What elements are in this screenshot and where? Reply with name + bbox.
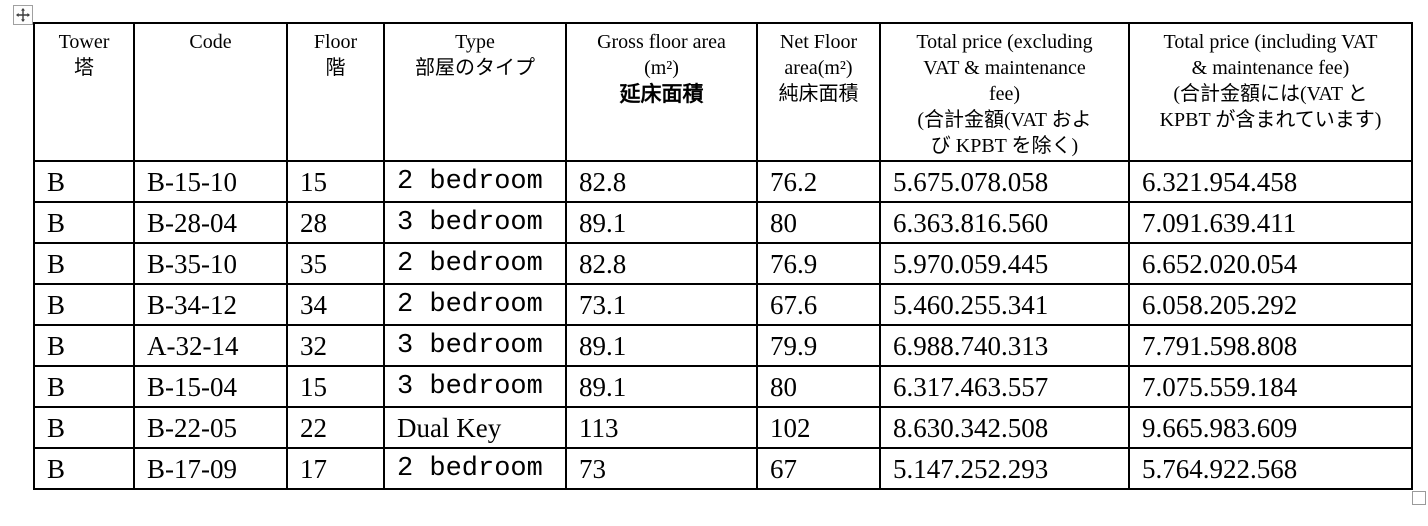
cell-gross: 82.8 [566, 243, 757, 284]
header-line: Floor [288, 29, 383, 55]
header-line: Gross floor area [567, 29, 756, 55]
cell-price-excl: 6.363.816.560 [880, 202, 1129, 243]
cell-price-excl: 5.675.078.058 [880, 161, 1129, 202]
table-row: BA-32-14323 bedroom89.179.96.988.740.313… [34, 325, 1412, 366]
cell-tower: B [34, 202, 134, 243]
cell-code: B-17-09 [134, 448, 287, 489]
cell-gross: 73.1 [566, 284, 757, 325]
cell-price-incl: 7.791.598.808 [1129, 325, 1412, 366]
cell-gross: 89.1 [566, 366, 757, 407]
column-header-price-incl: Total price (including VAT& maintenance … [1129, 23, 1412, 161]
header-row: Tower塔CodeFloor階Type部屋のタイプGross floor ar… [34, 23, 1412, 161]
column-header-net-area: Net Floorarea(m²)純床面積 [757, 23, 880, 161]
header-line: (合計金額(VAT およ [881, 107, 1128, 133]
cell-price-excl: 8.630.342.508 [880, 407, 1129, 448]
cell-type: 3 bedroom [384, 202, 566, 243]
cell-price-incl: 6.058.205.292 [1129, 284, 1412, 325]
cell-tower: B [34, 243, 134, 284]
cell-gross: 82.8 [566, 161, 757, 202]
cell-price-excl: 5.970.059.445 [880, 243, 1129, 284]
cell-type: 3 bedroom [384, 325, 566, 366]
table-row: BB-15-10152 bedroom82.876.25.675.078.058… [34, 161, 1412, 202]
cell-code: A-32-14 [134, 325, 287, 366]
cell-net: 102 [757, 407, 880, 448]
cell-price-incl: 5.764.922.568 [1129, 448, 1412, 489]
cell-floor: 15 [287, 366, 384, 407]
header-line: 階 [288, 55, 383, 81]
cell-floor: 17 [287, 448, 384, 489]
header-line: 塔 [35, 55, 133, 81]
cell-type: 2 bedroom [384, 161, 566, 202]
cell-tower: B [34, 366, 134, 407]
move-cross-icon [16, 8, 30, 22]
header-line: Tower [35, 29, 133, 55]
cell-gross: 73 [566, 448, 757, 489]
cell-tower: B [34, 325, 134, 366]
header-line: VAT & maintenance [881, 55, 1128, 81]
cell-gross: 89.1 [566, 325, 757, 366]
header-line: Code [135, 29, 286, 55]
cell-code: B-22-05 [134, 407, 287, 448]
cell-type: 2 bedroom [384, 448, 566, 489]
cell-floor: 22 [287, 407, 384, 448]
cell-code: B-28-04 [134, 202, 287, 243]
column-header-price-excl: Total price (excludingVAT & maintenancef… [880, 23, 1129, 161]
table-row: BB-17-09172 bedroom73675.147.252.2935.76… [34, 448, 1412, 489]
header-line: 延床面積 [567, 81, 756, 109]
cell-tower: B [34, 448, 134, 489]
table-row: BB-35-10352 bedroom82.876.95.970.059.445… [34, 243, 1412, 284]
column-header-floor: Floor階 [287, 23, 384, 161]
cell-price-incl: 7.075.559.184 [1129, 366, 1412, 407]
table-row: BB-22-0522Dual Key1131028.630.342.5089.6… [34, 407, 1412, 448]
cell-type: Dual Key [384, 407, 566, 448]
header-line: 部屋のタイプ [385, 55, 565, 81]
cell-net: 67 [757, 448, 880, 489]
cell-net: 76.9 [757, 243, 880, 284]
cell-type: 2 bedroom [384, 284, 566, 325]
table-move-handle[interactable] [13, 5, 33, 25]
header-line: KPBT が含まれています) [1130, 107, 1411, 133]
table-row: BB-34-12342 bedroom73.167.65.460.255.341… [34, 284, 1412, 325]
header-line: (合計金額には(VAT と [1130, 81, 1411, 107]
header-line: び KPBT を除く) [881, 133, 1128, 159]
cell-price-incl: 9.665.983.609 [1129, 407, 1412, 448]
cell-tower: B [34, 407, 134, 448]
cell-floor: 32 [287, 325, 384, 366]
cell-net: 67.6 [757, 284, 880, 325]
header-line: 純床面積 [758, 81, 879, 107]
cell-code: B-15-10 [134, 161, 287, 202]
cell-floor: 34 [287, 284, 384, 325]
table-row: BB-28-04283 bedroom89.1806.363.816.5607.… [34, 202, 1412, 243]
header-line: (m²) [567, 55, 756, 81]
cell-net: 80 [757, 366, 880, 407]
cell-tower: B [34, 284, 134, 325]
header-line: fee) [881, 81, 1128, 107]
cell-price-excl: 5.460.255.341 [880, 284, 1129, 325]
cell-net: 80 [757, 202, 880, 243]
cell-floor: 35 [287, 243, 384, 284]
cell-code: B-34-12 [134, 284, 287, 325]
cell-net: 76.2 [757, 161, 880, 202]
header-line: area(m²) [758, 55, 879, 81]
cell-price-excl: 5.147.252.293 [880, 448, 1129, 489]
table-body: BB-15-10152 bedroom82.876.25.675.078.058… [34, 161, 1412, 489]
cell-type: 3 bedroom [384, 366, 566, 407]
cell-price-incl: 6.652.020.054 [1129, 243, 1412, 284]
cell-price-incl: 7.091.639.411 [1129, 202, 1412, 243]
units-price-table: Tower塔CodeFloor階Type部屋のタイプGross floor ar… [33, 22, 1413, 490]
cell-net: 79.9 [757, 325, 880, 366]
header-line: Total price (including VAT [1130, 29, 1411, 55]
cell-floor: 15 [287, 161, 384, 202]
cell-gross: 89.1 [566, 202, 757, 243]
cell-code: B-35-10 [134, 243, 287, 284]
header-line: & maintenance fee) [1130, 55, 1411, 81]
header-line: Type [385, 29, 565, 55]
table-resize-handle[interactable] [1412, 491, 1426, 505]
cell-price-excl: 6.317.463.557 [880, 366, 1129, 407]
cell-floor: 28 [287, 202, 384, 243]
cell-price-excl: 6.988.740.313 [880, 325, 1129, 366]
cell-tower: B [34, 161, 134, 202]
column-header-code: Code [134, 23, 287, 161]
column-header-tower: Tower塔 [34, 23, 134, 161]
header-line: Net Floor [758, 29, 879, 55]
column-header-gross-area: Gross floor area(m²)延床面積 [566, 23, 757, 161]
cell-type: 2 bedroom [384, 243, 566, 284]
cell-gross: 113 [566, 407, 757, 448]
cell-code: B-15-04 [134, 366, 287, 407]
document-canvas: Tower塔CodeFloor階Type部屋のタイプGross floor ar… [0, 0, 1428, 526]
table-row: BB-15-04153 bedroom89.1806.317.463.5577.… [34, 366, 1412, 407]
cell-price-incl: 6.321.954.458 [1129, 161, 1412, 202]
header-line: Total price (excluding [881, 29, 1128, 55]
column-header-type: Type部屋のタイプ [384, 23, 566, 161]
